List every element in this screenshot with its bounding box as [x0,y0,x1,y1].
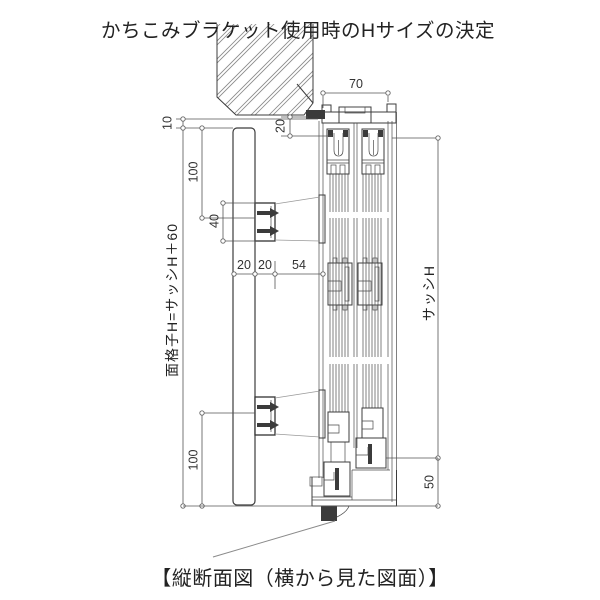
meeting-rail-inner [358,258,382,310]
page-title: かちこみブラケット使用時のHサイズの決定 [101,19,495,42]
bracket-screw [257,229,270,233]
bottom-rail-outer [324,412,350,496]
sash-frame-section [310,104,397,521]
frame-vertical-lines [319,112,397,502]
dim-frame-depth: 70 [321,77,390,108]
section-break-band [326,357,390,364]
dim-sill-50: 50 [386,458,440,508]
inner-sash-top-rail [362,129,384,174]
technical-drawing: 70 20 10 面格子H=サッシH＋60 100 [0,0,600,600]
bottom-rail-inner [356,408,386,468]
sill-front-lip [321,506,337,521]
meeting-rail-outer [328,258,352,310]
wall-mortar-slope [297,84,313,103]
dim-head-overlap-label: 20 [273,119,287,133]
caption: 【縦断面図（横から見た図面）】 [151,567,449,590]
dim-bracket-height-label: 40 [207,214,221,228]
dim-sill-50-label: 50 [422,475,436,489]
bracket-screw [257,211,270,215]
dim-lower-100-label: 100 [186,450,200,471]
section-break-band [326,212,390,218]
dim-frame-depth-label: 70 [349,77,363,91]
bracket-screw [257,423,270,427]
dim-grille-height: 面格子H=サッシH＋60 [164,126,185,508]
caption-leader-line [213,521,335,557]
bracket-screw [257,405,270,409]
dimension-annotations: 70 20 10 面格子H=サッシH＋60 100 [160,77,440,508]
frame-strip-upper [319,195,325,243]
dim-upper-100-label: 100 [186,162,200,183]
dim-grille-top-offset-label: 10 [160,116,174,130]
dim-bracket-to-frame-label: 54 [292,258,306,272]
grille-bar [233,128,255,505]
dim-sash-height-label: サッシH [421,265,437,321]
bracket-upper [255,197,320,241]
dim-sash-height: サッシH [392,136,440,460]
bracket-lower [255,391,320,437]
dim-bracket-depth-label: 20 [258,258,272,272]
sash-head-frame [322,104,396,123]
dim-grille-depth-label: 20 [237,258,251,272]
frame-strip-lower [319,390,325,438]
dim-grille-height-label: 面格子H=サッシH＋60 [164,223,180,377]
